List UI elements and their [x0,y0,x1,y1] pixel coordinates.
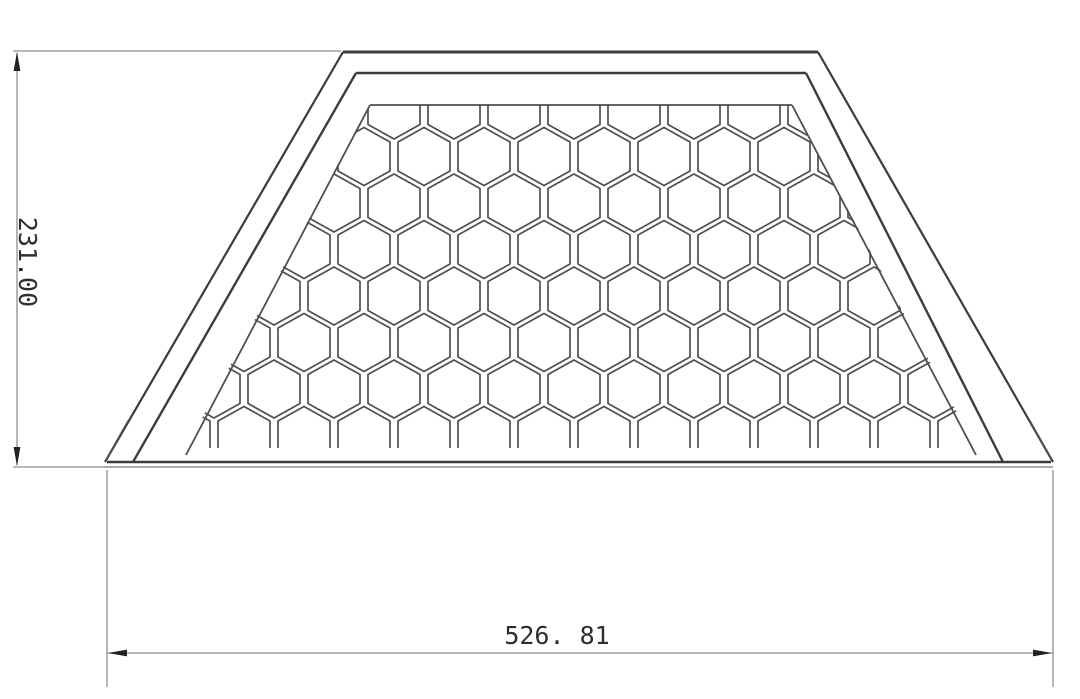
hexagon-cell [428,360,480,418]
hexagon-cell [608,81,660,139]
hexagon-cell [938,221,990,279]
hexagon-cell [458,221,510,279]
hexagon-cell [758,221,810,279]
hexagon-cell [848,360,900,418]
hexagon-cell [578,407,630,465]
hexagon-cell [188,174,240,232]
hexagon-cell [458,314,510,372]
hexagon-cell [308,174,360,232]
hexagon-cell [338,221,390,279]
hexagon-cell [248,81,300,139]
hexagon-cell [818,221,870,279]
hexagon-cell [818,407,870,465]
hexagon-cell [608,360,660,418]
hexagon-cell [428,267,480,325]
hexagon-cell [518,221,570,279]
dimension-arrow-left-icon [108,650,127,657]
hexagon-cell [818,314,870,372]
hexagon-cell [728,360,780,418]
width-dimension-label: 526. 81 [504,621,609,650]
hexagon-cell [668,174,720,232]
hexagon-cell [248,267,300,325]
hexagon-cell [998,314,1050,372]
hexagon-cell [518,407,570,465]
hexagon-cell [998,128,1050,186]
hexagon-cell [488,360,540,418]
hexagon-cell [548,81,600,139]
hexagon-cell [488,267,540,325]
hexagon-cell [878,407,930,465]
hexagon-cell [278,128,330,186]
hexagon-cell [938,314,990,372]
hexagon-cell [518,128,570,186]
right-corner-seam [1030,421,1052,460]
drawing-canvas: 231.00 526. 81 [0,0,1080,699]
hexagon-cell [428,174,480,232]
left-corner-seam [106,421,128,460]
hexagon-cell [548,174,600,232]
hexagon-cell [908,81,960,139]
hexagon-cell [758,128,810,186]
hexagon-cell [488,174,540,232]
hexagon-cell [158,407,210,465]
dimension-arrow-up-icon [14,52,21,71]
hexagon-cell [608,174,660,232]
hexagon-cell [668,267,720,325]
hexagon-cell [398,407,450,465]
hexagon-cell [758,314,810,372]
hexagon-cell [218,407,270,465]
hexagon-cell [848,81,900,139]
hexagon-cell [578,314,630,372]
hexagon-cell [938,407,990,465]
hexagon-cell [248,360,300,418]
hexagon-cell [668,81,720,139]
hexagon-cell [128,267,180,325]
hexagon-cell [128,174,180,232]
height-dimension-label: 231.00 [13,217,42,307]
rim-fold-right-line [806,73,1003,462]
hexagon-cell [548,267,600,325]
hexagon-cell [128,81,180,139]
hexagon-cell [158,221,210,279]
hexagon-cell [398,314,450,372]
hexagon-cell [728,174,780,232]
hexagon-cell [998,221,1050,279]
hexagon-cell [428,81,480,139]
hexagon-cell [488,81,540,139]
hexagon-cell [548,360,600,418]
hexagon-cell [638,407,690,465]
hexagon-cell [968,267,1020,325]
hexagon-cell [788,360,840,418]
hexagon-cell [998,407,1050,465]
hexagon-cell [728,267,780,325]
outer-right-edge [818,52,1053,462]
hexagon-cell [908,267,960,325]
width-dimension [107,470,1053,687]
hexagon-cell [698,314,750,372]
hexagon-cell [818,128,870,186]
hexagon-cell [458,128,510,186]
hexagon-cell [638,128,690,186]
hexagon-cell [578,128,630,186]
hexagon-cell [578,221,630,279]
hexagon-cell [368,267,420,325]
hexagon-cell [788,267,840,325]
hexagon-cell [458,407,510,465]
hexagon-cell [938,128,990,186]
hexagon-cell [668,360,720,418]
hexagon-cell [308,267,360,325]
hexagon-cell [308,360,360,418]
hexagon-cell [368,174,420,232]
hexagon-cell [968,81,1020,139]
hexagon-cell [158,128,210,186]
hexagon-cell [698,407,750,465]
inner-opening-boundary [106,105,1052,460]
hexagon-cell [218,128,270,186]
height-dimension [13,51,341,467]
hexagon-cell [758,407,810,465]
dimension-arrow-down-icon [14,447,21,466]
hexagon-cell [968,174,1020,232]
hexagon-cell [518,314,570,372]
hexagon-cell [398,221,450,279]
hexagon-cell [338,128,390,186]
hexagon-cell [398,128,450,186]
hexagon-cell [698,128,750,186]
hexagon-cell [278,314,330,372]
hexagon-cell [368,81,420,139]
technical-drawing: 231.00 526. 81 [0,0,1080,699]
dimension-arrow-right-icon [1033,650,1052,657]
hexagon-cell [728,81,780,139]
hexagon-cell [878,314,930,372]
hexagon-cell [368,360,420,418]
hexagon-cell [638,314,690,372]
hexagon-cell [608,267,660,325]
inner-left-boundary [186,105,370,455]
hexagon-cell [638,221,690,279]
hexagon-cell [878,128,930,186]
hexagon-cell [188,81,240,139]
hexagon-cell [338,407,390,465]
honeycomb-pattern [128,81,1050,465]
hexagon-cell [698,221,750,279]
hexagon-cell [218,314,270,372]
hexagon-cell [278,407,330,465]
hexagon-cell [338,314,390,372]
